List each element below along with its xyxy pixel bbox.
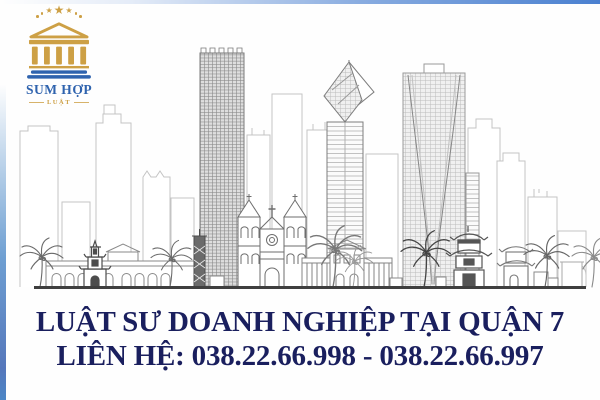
logo-org-name: SUM HỢP <box>26 82 92 98</box>
courthouse-temple-icon <box>25 20 93 80</box>
banner-text-block: LUẬT SƯ DOANH NGHIỆP TẠI QUẬN 7 LIÊN HỆ:… <box>0 305 600 373</box>
banner-headline: LUẬT SƯ DOANH NGHIỆP TẠI QUẬN 7 <box>0 305 600 339</box>
banner-contact-line: LIÊN HỆ: 038.22.66.998 - 038.22.66.997 <box>0 339 600 373</box>
sum-hop-luat-logo: ★ ★ ★ SUM HỢP LUẬT <box>12 4 106 106</box>
law-firm-ad-banner: { "banner": { "headline": "LUẬT SƯ DOANH… <box>0 0 600 400</box>
right-gate <box>560 262 584 287</box>
cathedral-twin-towers <box>238 194 306 287</box>
right-rule <box>74 102 89 103</box>
stars-arc-icon: ★ ★ ★ <box>35 4 82 20</box>
grid-facade-tower <box>403 64 465 287</box>
braced-tower <box>192 229 207 287</box>
left-rule <box>29 102 44 103</box>
hatched-highrise <box>200 48 244 287</box>
logo-org-type: LUẬT <box>29 99 89 106</box>
